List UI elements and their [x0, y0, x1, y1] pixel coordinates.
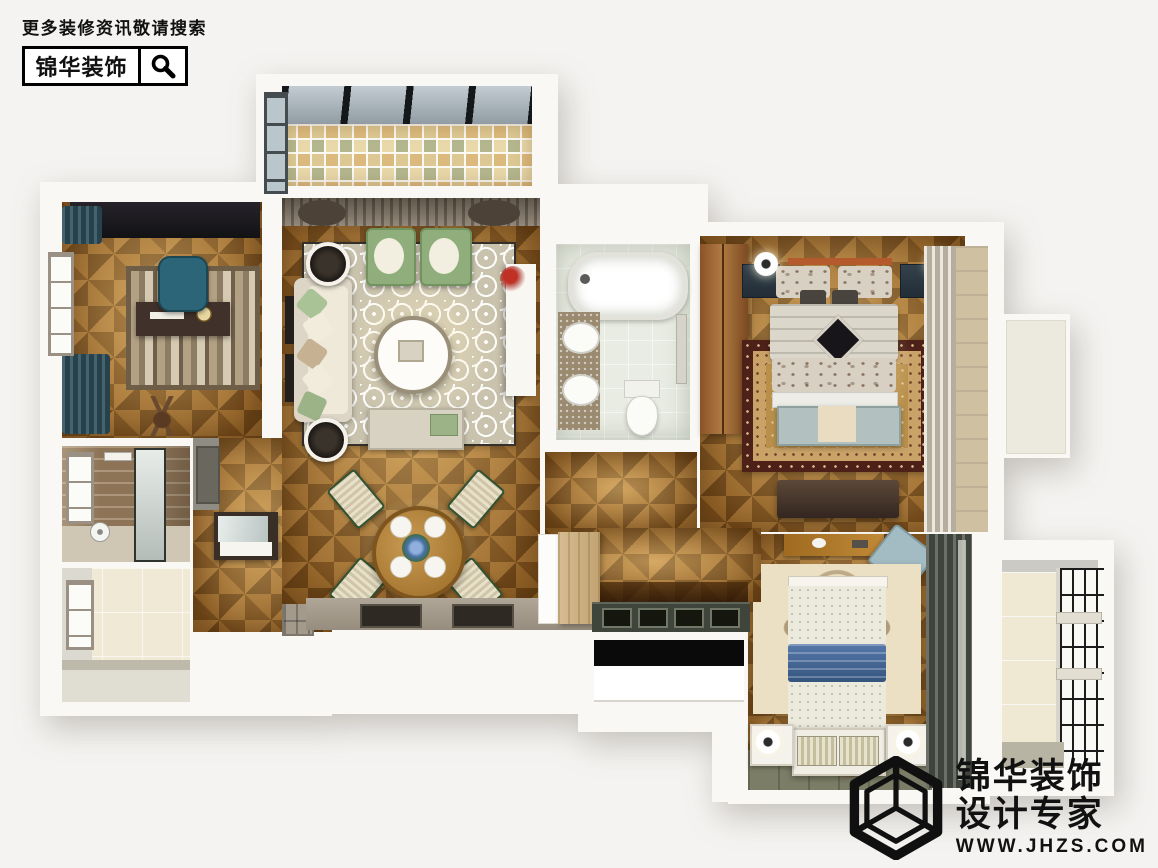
- right-protrusion-inset: [1006, 320, 1066, 454]
- master-wardrobe: [700, 244, 748, 434]
- bathroom-sink-2: [562, 374, 600, 406]
- bed2-quilt-bottom: [788, 682, 886, 728]
- bedroom2-window-slit: [958, 540, 966, 780]
- shower-glass-door: [134, 448, 166, 562]
- study-window: [48, 252, 74, 356]
- bathroom-sink-1: [562, 322, 600, 354]
- counter-tray-2: [452, 604, 514, 628]
- search-tagline: 更多装修资讯敬请搜索: [22, 14, 207, 39]
- bed2-blue-blanket: [788, 644, 886, 682]
- brand-name: 锦华装饰: [25, 49, 138, 83]
- wireframe-cube-icon: [844, 756, 948, 860]
- watermark-logo: 锦华装饰 设计专家 WWW.JHZS.COM: [844, 756, 1148, 860]
- coffee-table-tray: [398, 340, 424, 362]
- study-office-chair: [158, 256, 208, 312]
- toilet-bowl: [626, 396, 658, 436]
- bedroom2-desk-cup: [812, 538, 826, 548]
- stove-grate-1: [602, 608, 632, 628]
- master-lamp-left: [754, 252, 778, 276]
- hallway-vanity-basin: [220, 542, 272, 556]
- balcony-right-mullion-1: [1056, 612, 1102, 624]
- shower-window: [66, 452, 94, 524]
- dining-plate-2: [424, 516, 446, 538]
- master-blanket-floral: [772, 358, 896, 392]
- search-icon-cell: [138, 49, 185, 83]
- kitchen-door-panel: [538, 534, 560, 624]
- study-desk-paper: [150, 312, 184, 319]
- side-table-top: [306, 242, 350, 286]
- header-search-hint: 更多装修资讯敬请搜索 锦华装饰: [22, 14, 207, 86]
- bed2-foot-cushion-1: [797, 736, 837, 766]
- bedroom2-lamp-right: [896, 730, 920, 754]
- balcony-right-window: [1056, 568, 1104, 764]
- study-curtain-top: [62, 206, 102, 244]
- dining-centerpiece-flowers: [402, 534, 430, 562]
- stove-grate-3: [674, 608, 704, 628]
- leftroom-window: [66, 580, 94, 650]
- console-flowers: [500, 266, 526, 292]
- watermark-subtitle: 设计专家: [956, 796, 1148, 834]
- dining-plate-4: [424, 556, 446, 578]
- shower-towel-bar: [104, 452, 132, 461]
- balcony-top-mosaic-floor: [282, 124, 532, 186]
- wall-frame-1: [285, 296, 294, 344]
- balcony-right-wall-tile: [1002, 572, 1060, 744]
- watermark-website: WWW.JHZS.COM: [956, 836, 1148, 858]
- master-wardrobe-slider: [956, 246, 988, 532]
- master-bench-cloth: [818, 406, 856, 442]
- hallway-vanity-mirror: [218, 516, 268, 542]
- study-antler-decor: [136, 396, 188, 436]
- stove-grate-2: [638, 608, 668, 628]
- brand-search-box: 锦华装饰: [22, 46, 188, 86]
- bedroom2-desk: [784, 534, 884, 556]
- balcony-right-mullion-2: [1056, 668, 1102, 680]
- watermark-brand: 锦华装饰: [956, 758, 1148, 796]
- shower-room-floor: [62, 526, 190, 562]
- bathtub-faucet: [580, 274, 590, 284]
- kitchen-exterior-window-glass: [594, 640, 744, 666]
- shower-head: [90, 522, 110, 542]
- bench-green-tray: [430, 414, 458, 436]
- study-curtain-bottom: [62, 354, 110, 434]
- bathroom-towel-rail: [676, 314, 687, 384]
- armchair-2-cushion: [429, 238, 459, 274]
- armchair-1-cushion: [374, 238, 404, 274]
- balcony-top-glass-roof: [282, 86, 532, 126]
- floorplan-render: 更多装修资讯敬请搜索 锦华装饰: [0, 0, 1158, 868]
- balcony-top-window: [264, 92, 288, 194]
- master-wardrobe-seam: [722, 244, 724, 434]
- leftroom-floor: [62, 660, 190, 702]
- kitchen-exterior-window-sill: [594, 666, 744, 702]
- search-icon: [150, 53, 176, 79]
- side-table-bottom: [304, 418, 348, 462]
- master-curtain-right: [924, 246, 958, 532]
- bedroom2-lamp-left: [756, 730, 780, 754]
- stove-grate-4: [710, 608, 740, 628]
- bedroom2-desk-laptop: [852, 540, 868, 548]
- bathtub: [568, 252, 688, 320]
- corridor-floor: [545, 452, 697, 532]
- hallway-cabinet: [196, 446, 220, 504]
- master-bolster-orange: [788, 258, 892, 265]
- master-dresser: [777, 480, 899, 518]
- wall-frame-2: [285, 354, 294, 402]
- living-curtain-bunch-right: [468, 200, 520, 226]
- living-curtain-bunch-left: [298, 200, 346, 226]
- counter-tray-1: [360, 604, 422, 628]
- bed2-quilt-top: [788, 586, 886, 644]
